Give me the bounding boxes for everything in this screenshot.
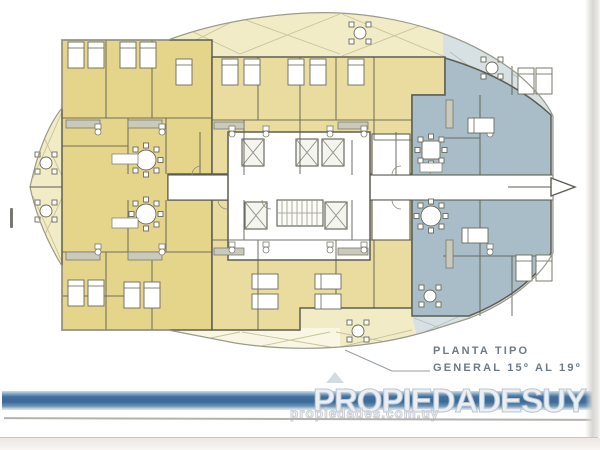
scan-bottom-shadow bbox=[0, 438, 600, 450]
utility-room-bottom bbox=[372, 200, 410, 240]
scan-artifact bbox=[10, 208, 13, 228]
leader-line bbox=[345, 350, 430, 371]
plan-annotation-line1: PLANTA TIPO bbox=[433, 343, 582, 360]
stairs-icon bbox=[277, 200, 323, 226]
scan-right-shadow bbox=[585, 0, 599, 437]
plan-annotation-line2: GENERAL 15º AL 19º bbox=[433, 360, 582, 377]
scanned-floor-plan-page: PLANTA TIPO GENERAL 15º AL 19º PROPIEDAD… bbox=[0, 0, 600, 450]
plan-annotation: PLANTA TIPO GENERAL 15º AL 19º bbox=[433, 343, 582, 377]
direction-arrow-icon bbox=[551, 178, 575, 196]
